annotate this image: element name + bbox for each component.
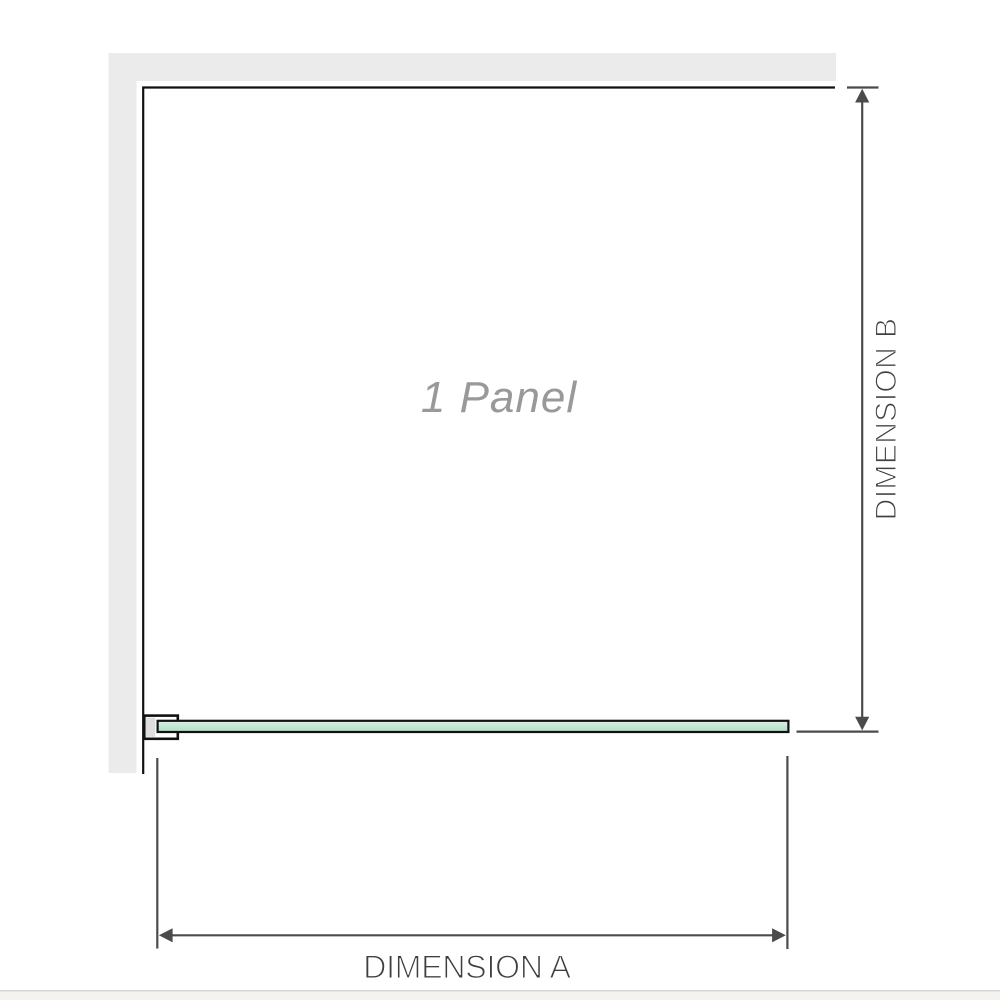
svg-text:DIMENSION A: DIMENSION A [363, 949, 571, 985]
svg-text:DIMENSION B: DIMENSION B [870, 318, 903, 521]
svg-text:1 Panel: 1 Panel [421, 373, 577, 422]
